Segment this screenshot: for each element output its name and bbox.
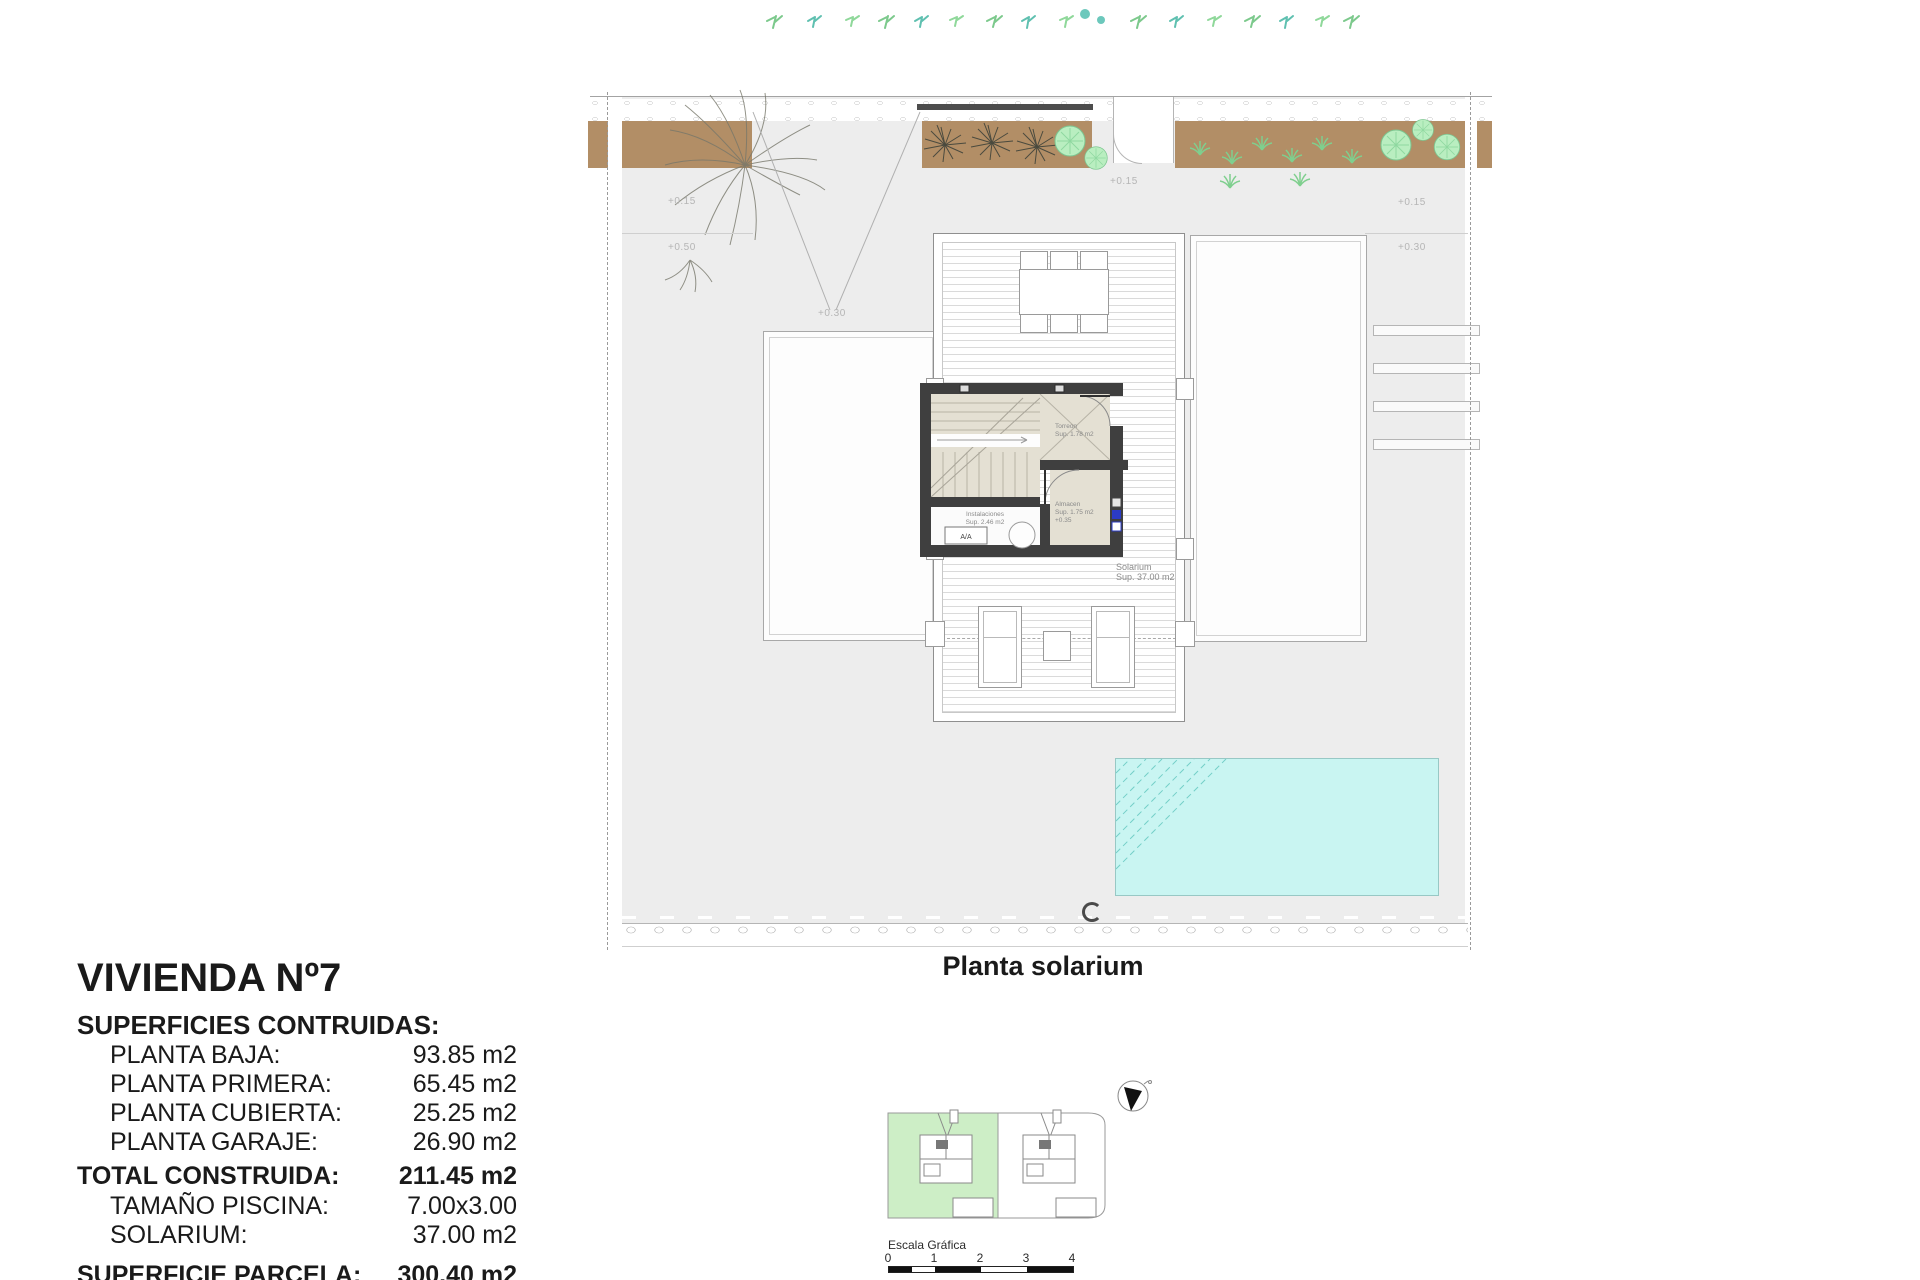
svg-text:Sup. 2.46 m2: Sup. 2.46 m2 [966, 519, 1005, 526]
table-row-total: TOTAL CONSTRUIDA:211.45 m2 [77, 1160, 517, 1192]
chair [1080, 314, 1108, 333]
torreon-label: Torreon [1055, 423, 1077, 430]
level-division-line [622, 233, 753, 234]
aa-unit-label: A/A [960, 534, 972, 541]
exterior-step [1373, 439, 1480, 450]
instalaciones-label: Instalaciones [966, 511, 1005, 518]
wall-tie [1176, 538, 1194, 560]
level-division-line [1365, 233, 1468, 234]
surfaces-heading: SUPERFICIES CONTRUIDAS: [77, 1010, 440, 1041]
vent-blue [1112, 510, 1121, 519]
garden-plants [900, 100, 1500, 210]
boiler-circle [1009, 522, 1035, 548]
elevation-label: +0.30 [818, 308, 846, 319]
page-title: VIVIENDA Nº7 [77, 956, 341, 1001]
scale-ticks: 0 1 2 3 4 [880, 1251, 1090, 1264]
sun-lounger [1091, 606, 1135, 688]
gravel-strip [590, 99, 608, 121]
chair [1020, 251, 1048, 270]
table-row: PLANTA BAJA:93.85 m2 [77, 1041, 517, 1070]
table-row: PLANTA GARAJE:26.90 m2 [77, 1128, 517, 1157]
exterior-step [1373, 325, 1480, 336]
drawing-sheet: +0.15 +0.50 +0.30 +0.15 +0.15 +0.30 [0, 0, 1920, 1280]
elevation-label: +0.50 [668, 242, 696, 253]
table-row: PLANTA PRIMERA:65.45 m2 [77, 1070, 517, 1099]
sun-lounger [978, 606, 1022, 688]
driveway-slope-lines [745, 105, 930, 320]
almacen-label: Almacen [1055, 501, 1081, 508]
plot-boundary-left [607, 92, 608, 950]
vent-outline [1112, 522, 1121, 531]
table-row: PLANTA CUBIERTA:25.25 m2 [77, 1099, 517, 1128]
exterior-step [1373, 401, 1480, 412]
scale-label: Escala Gráfica [888, 1238, 966, 1252]
chair [1050, 314, 1078, 333]
lower-roof-block-right [1190, 235, 1367, 642]
boundary-dashes [622, 916, 1468, 919]
svg-text:Sup. 1.78 m2: Sup. 1.78 m2 [1055, 431, 1094, 438]
wall-tie [1175, 621, 1195, 647]
chair [1080, 251, 1108, 270]
wall-tie [1176, 378, 1194, 400]
stair-core: Torreon Sup. 1.78 m2 Almacen Sup. 1.75 m… [905, 370, 1135, 570]
side-table [1043, 631, 1071, 661]
table-row: SOLARIUM:37.00 m2 [77, 1221, 517, 1250]
exterior-step [1373, 363, 1480, 374]
garden-strip [588, 121, 608, 168]
hedge-plants [765, 1, 1375, 31]
chair [1020, 314, 1048, 333]
elevation-label: +0.15 [668, 196, 696, 207]
dining-table [1019, 269, 1109, 315]
plan-caption: Planta solarium [895, 951, 1191, 982]
boundary-gap [1465, 97, 1477, 168]
bottom-plant-mark [1082, 902, 1102, 922]
north-arrow-icon [1118, 1081, 1152, 1112]
stone-wall-band [622, 923, 1468, 947]
table-row-parcela: SUPERFICIE PARCELA:300.40 m2 [77, 1261, 517, 1280]
table-row: TAMAÑO PISCINA:7.00x3.00 [77, 1192, 517, 1221]
key-plan [880, 1080, 1170, 1230]
elevation-label: +0.15 [1398, 197, 1426, 208]
chair [1050, 251, 1078, 270]
wall-tie [925, 621, 945, 647]
surfaces-table: PLANTA BAJA:93.85 m2 PLANTA PRIMERA:65.4… [77, 1041, 517, 1250]
pool-water-hatch [1116, 759, 1438, 895]
elevation-label: +0.30 [1398, 242, 1426, 253]
scale-bar [888, 1266, 1074, 1273]
vent-gray [1112, 498, 1121, 507]
svg-text:Sup. 1.75 m2: Sup. 1.75 m2 [1055, 509, 1094, 516]
svg-text:+0.35: +0.35 [1055, 517, 1072, 524]
swimming-pool [1115, 758, 1439, 896]
plot-boundary-right [1470, 92, 1471, 950]
elevation-label: +0.15 [1110, 176, 1138, 187]
